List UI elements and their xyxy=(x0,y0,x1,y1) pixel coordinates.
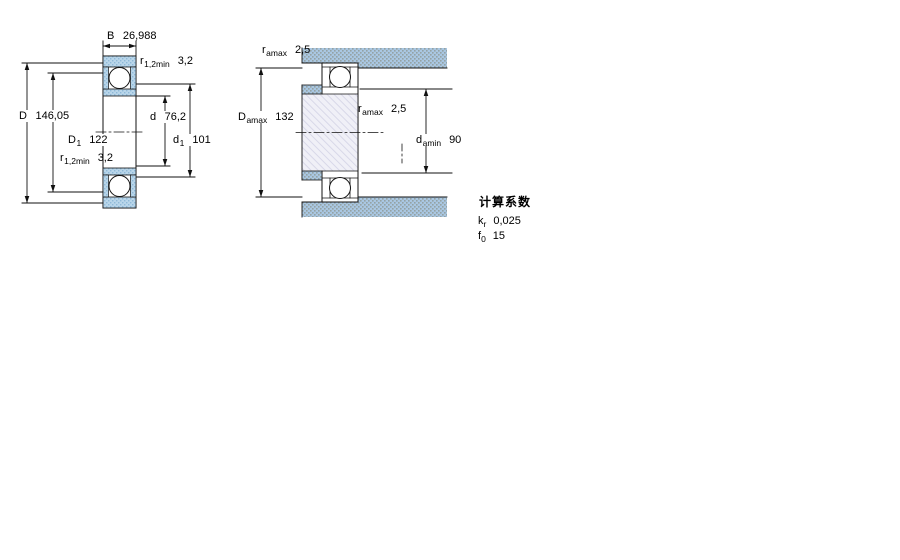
dim-value: 3,2 xyxy=(178,55,193,67)
arrowhead xyxy=(424,89,429,96)
shaft-shoulder-bottom xyxy=(302,171,322,180)
dim-subscript: 1 xyxy=(180,138,185,148)
dim-value: 122 xyxy=(89,134,107,146)
arrowhead xyxy=(188,84,193,91)
dim-label-r-bottom: r1,2min3,2 xyxy=(60,152,113,164)
dim-d1-lines xyxy=(137,84,195,177)
factor-value: 15 xyxy=(493,230,505,242)
ring-shoulder xyxy=(131,67,137,89)
dim-value: 3,2 xyxy=(98,152,113,164)
dim-value: 26,988 xyxy=(123,30,157,42)
dim-label-B: B26,988 xyxy=(107,30,157,42)
arrowhead xyxy=(25,196,30,203)
ball-top xyxy=(330,67,351,88)
arrowhead xyxy=(103,44,110,49)
ring-shoulder xyxy=(103,175,109,197)
inner-ring-top-section xyxy=(103,89,136,96)
dim-subscript: 1,2min xyxy=(64,156,90,166)
ring-shoulder xyxy=(103,67,109,89)
calculation-factors-title: 计算系数 xyxy=(479,193,531,210)
dim-symbol: D xyxy=(68,134,76,146)
dim-subscript: amax xyxy=(266,48,287,58)
shaft-shoulder-top xyxy=(302,85,322,94)
factor-subscript: 0 xyxy=(481,234,486,244)
dim-value: 90 xyxy=(449,134,461,146)
arrowhead xyxy=(51,73,56,80)
dim-subscript: amax xyxy=(362,107,383,117)
dim-label-D1: D1122 xyxy=(66,134,110,146)
arrowhead xyxy=(424,166,429,173)
dim-value: 2,5 xyxy=(391,103,406,115)
dim-symbol: D xyxy=(19,110,27,122)
dim-label-d1: d1101 xyxy=(171,134,213,146)
dim-value: 132 xyxy=(275,111,293,123)
technical-drawing-canvas xyxy=(0,0,900,560)
arrowhead xyxy=(259,68,264,75)
inner-ring-bottom-section xyxy=(103,168,136,175)
dim-symbol: d xyxy=(416,134,422,146)
dim-symbol: d xyxy=(150,111,156,123)
factor-subscript: r xyxy=(484,219,487,229)
dim-damin-lines xyxy=(360,89,452,173)
mounted-view-drawing xyxy=(256,48,452,217)
dim-label-r-amax-top: ramax2,5 xyxy=(262,44,310,56)
factor-symbol: k xyxy=(478,215,484,227)
ball-top xyxy=(109,68,130,89)
dim-B-lines xyxy=(103,41,136,55)
dim-label-D: D146,05 xyxy=(17,110,71,122)
dim-D-lines xyxy=(22,63,103,203)
outer-ring-top-section xyxy=(103,56,136,67)
dim-value: 146,05 xyxy=(35,110,69,122)
dim-subscript: amax xyxy=(246,115,267,125)
dim-d-lines xyxy=(137,96,170,166)
arrowhead xyxy=(259,190,264,197)
arrowhead xyxy=(51,185,56,192)
dim-label-r-amax-mid: ramax2,5 xyxy=(358,103,406,115)
arrowhead xyxy=(25,63,30,70)
factor-value: 0,025 xyxy=(493,215,521,227)
dim-symbol: B xyxy=(107,30,114,42)
dim-symbol: d xyxy=(173,134,179,146)
dim-subscript: 1 xyxy=(76,138,81,148)
arrowhead xyxy=(188,170,193,177)
factor-row-f0: f015 xyxy=(478,230,505,242)
bearing-drawing-page: B26,988 r1,2min3,2 D146,05 D1122 r1,2min… xyxy=(0,0,900,560)
outer-ring-bottom-section xyxy=(103,197,136,208)
dim-D1-lines xyxy=(48,73,103,192)
arrowhead xyxy=(163,96,168,103)
dim-label-D-amax: Damax132 xyxy=(236,111,296,123)
dim-subscript: amin xyxy=(423,138,441,148)
dim-label-r-top: r1,2min3,2 xyxy=(140,55,193,67)
dim-value: 2,5 xyxy=(295,44,310,56)
dim-value: 76,2 xyxy=(165,111,186,123)
dim-label-d-amin: damin90 xyxy=(414,134,463,146)
dim-value: 101 xyxy=(192,134,210,146)
factor-row-kr: kr0,025 xyxy=(478,215,521,227)
ball-bottom xyxy=(330,178,351,199)
ball-bottom xyxy=(109,176,130,197)
dim-subscript: 1,2min xyxy=(144,59,170,69)
dim-label-d: d76,2 xyxy=(148,111,188,123)
dim-symbol: D xyxy=(238,111,246,123)
dim-Damax-lines xyxy=(256,68,302,197)
arrowhead xyxy=(129,44,136,49)
arrowhead xyxy=(163,159,168,166)
ring-shoulder xyxy=(131,175,137,197)
